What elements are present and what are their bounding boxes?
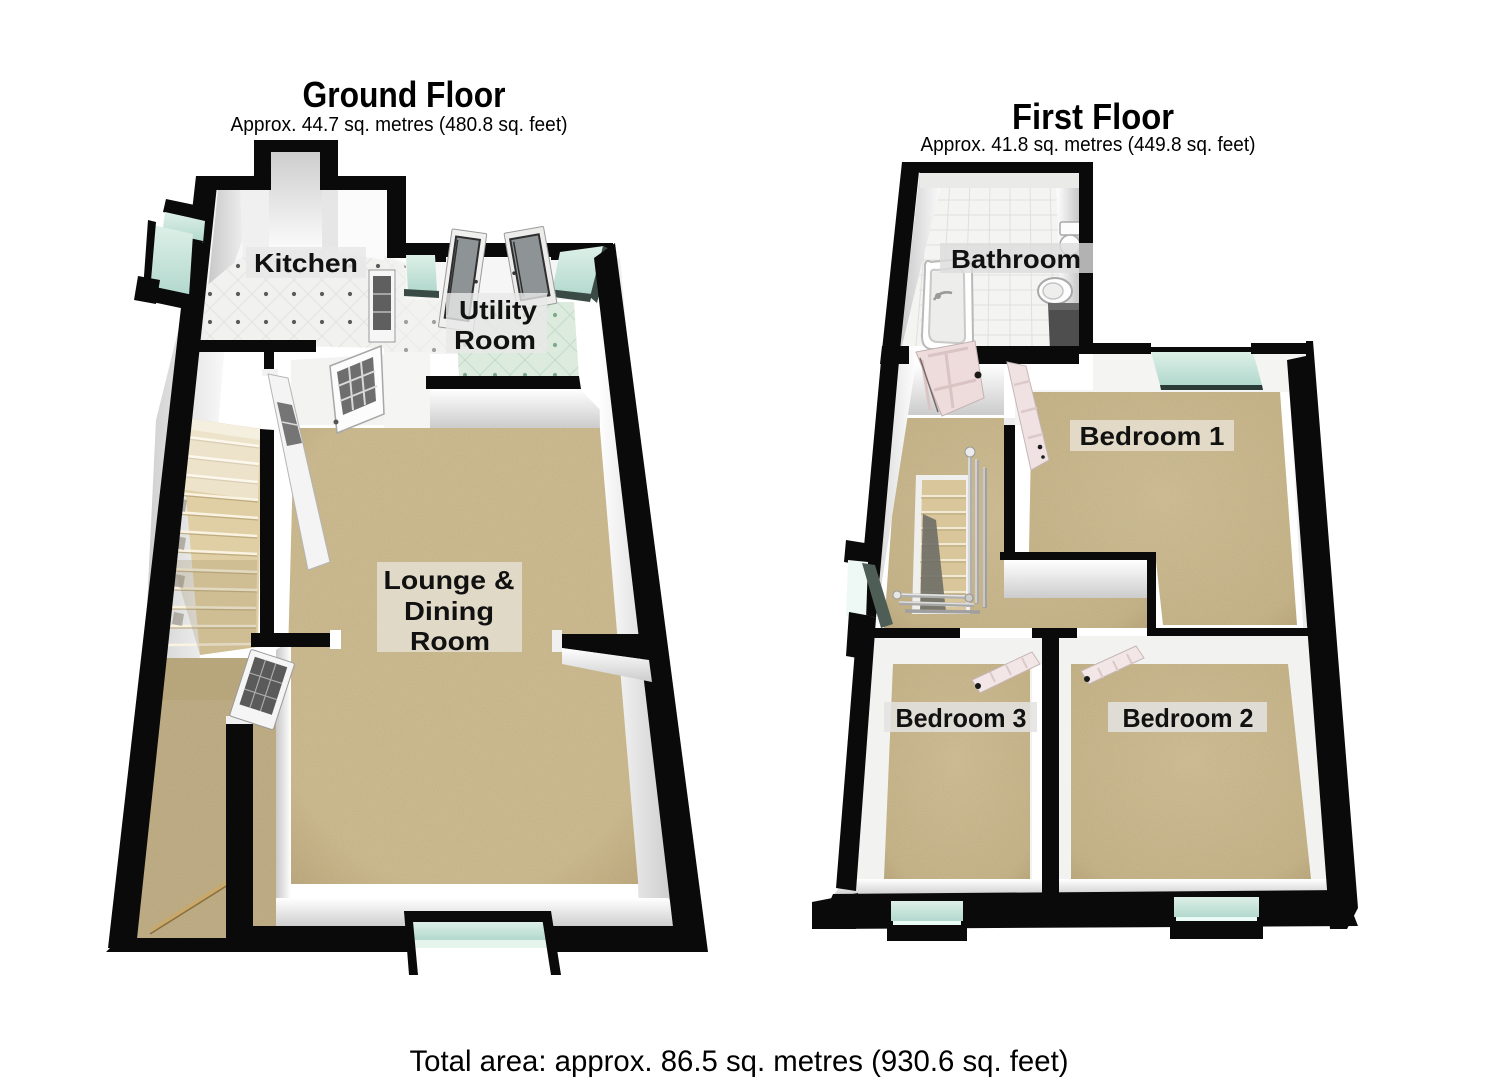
svg-text:Bedroom 2: Bedroom 2 [1123,703,1254,733]
svg-text:First Floor: First Floor [1012,96,1174,137]
svg-text:Bedroom 3: Bedroom 3 [896,703,1027,733]
svg-text:Approx. 41.8 sq. metres (449.8: Approx. 41.8 sq. metres (449.8 sq. feet) [921,134,1256,156]
svg-text:Bathroom: Bathroom [951,244,1081,274]
svg-text:Bedroom 1: Bedroom 1 [1080,421,1225,451]
svg-text:Room: Room [410,626,490,656]
svg-text:Total area: approx. 86.5 sq. m: Total area: approx. 86.5 sq. metres (930… [410,1045,1069,1078]
svg-text:Utility: Utility [459,295,538,325]
svg-text:Kitchen: Kitchen [254,248,358,278]
svg-text:Ground Floor: Ground Floor [303,74,506,115]
svg-text:Dining: Dining [404,596,494,626]
svg-text:Approx. 44.7 sq. metres (480.8: Approx. 44.7 sq. metres (480.8 sq. feet) [231,114,568,136]
svg-text:Lounge &: Lounge & [384,565,515,595]
svg-text:Room: Room [454,325,536,355]
